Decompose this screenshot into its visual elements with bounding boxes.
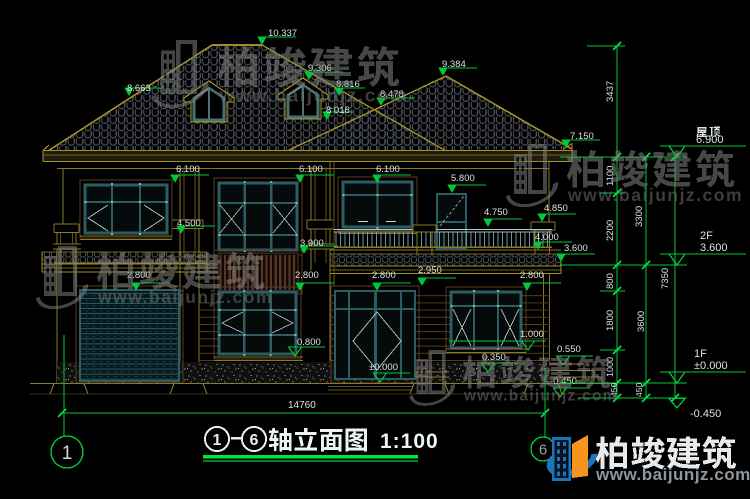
svg-text:9.384: 9.384 xyxy=(442,59,466,70)
svg-text:6: 6 xyxy=(250,432,259,449)
svg-text:1800: 1800 xyxy=(605,310,616,331)
svg-text:www.baijunjz.com: www.baijunjz.com xyxy=(595,465,750,484)
svg-text:8.663: 8.663 xyxy=(127,83,151,94)
svg-text:4.500: 4.500 xyxy=(177,218,201,229)
svg-text:3.600: 3.600 xyxy=(700,242,728,254)
svg-text:www.baijunjz.com: www.baijunjz.com xyxy=(218,85,408,106)
svg-text:2.800: 2.800 xyxy=(520,270,544,281)
svg-text:±0.000: ±0.000 xyxy=(369,362,398,373)
svg-text:2.950: 2.950 xyxy=(418,265,442,276)
svg-text:1.000: 1.000 xyxy=(520,329,544,340)
svg-text:6.100: 6.100 xyxy=(176,164,200,175)
svg-text:2200: 2200 xyxy=(605,220,616,241)
svg-text:2.800: 2.800 xyxy=(372,270,396,281)
svg-text:1F: 1F xyxy=(694,348,707,360)
svg-text:6.100: 6.100 xyxy=(376,164,400,175)
svg-text:450: 450 xyxy=(634,383,644,397)
svg-text:www.baijunjz.com: www.baijunjz.com xyxy=(97,287,273,307)
svg-text:0.800: 0.800 xyxy=(297,337,321,348)
svg-text:±0.000: ±0.000 xyxy=(694,360,728,372)
svg-text:4.000: 4.000 xyxy=(535,232,559,243)
svg-text:6.100: 6.100 xyxy=(299,164,323,175)
svg-text:3.600: 3.600 xyxy=(564,243,588,254)
svg-text:1: 1 xyxy=(213,432,222,449)
svg-text:0.550: 0.550 xyxy=(557,344,581,355)
svg-text:4.750: 4.750 xyxy=(484,207,508,218)
svg-text:3300: 3300 xyxy=(634,206,645,227)
svg-text:7350: 7350 xyxy=(660,268,671,289)
svg-text:2.800: 2.800 xyxy=(295,270,319,281)
svg-text:14760: 14760 xyxy=(288,400,316,411)
svg-text:1: 1 xyxy=(62,443,73,464)
svg-text:3.900: 3.900 xyxy=(300,238,324,249)
svg-text:7.150: 7.150 xyxy=(570,131,594,142)
svg-text:2F: 2F xyxy=(700,230,713,242)
svg-text:5.800: 5.800 xyxy=(451,173,475,184)
svg-text:800: 800 xyxy=(605,273,616,289)
svg-text:8 016: 8 016 xyxy=(326,105,350,116)
svg-text:www.baijunjz.com: www.baijunjz.com xyxy=(567,185,743,205)
svg-text:4.850: 4.850 xyxy=(544,203,568,214)
svg-text:10.337: 10.337 xyxy=(268,28,297,39)
svg-text:1:100: 1:100 xyxy=(380,430,439,453)
svg-text:-0.450: -0.450 xyxy=(690,408,721,420)
svg-text:6: 6 xyxy=(539,442,547,459)
svg-text:3437: 3437 xyxy=(605,81,616,102)
svg-text:www.baijunjz.com: www.baijunjz.com xyxy=(463,387,618,404)
svg-text:3600: 3600 xyxy=(636,311,647,332)
